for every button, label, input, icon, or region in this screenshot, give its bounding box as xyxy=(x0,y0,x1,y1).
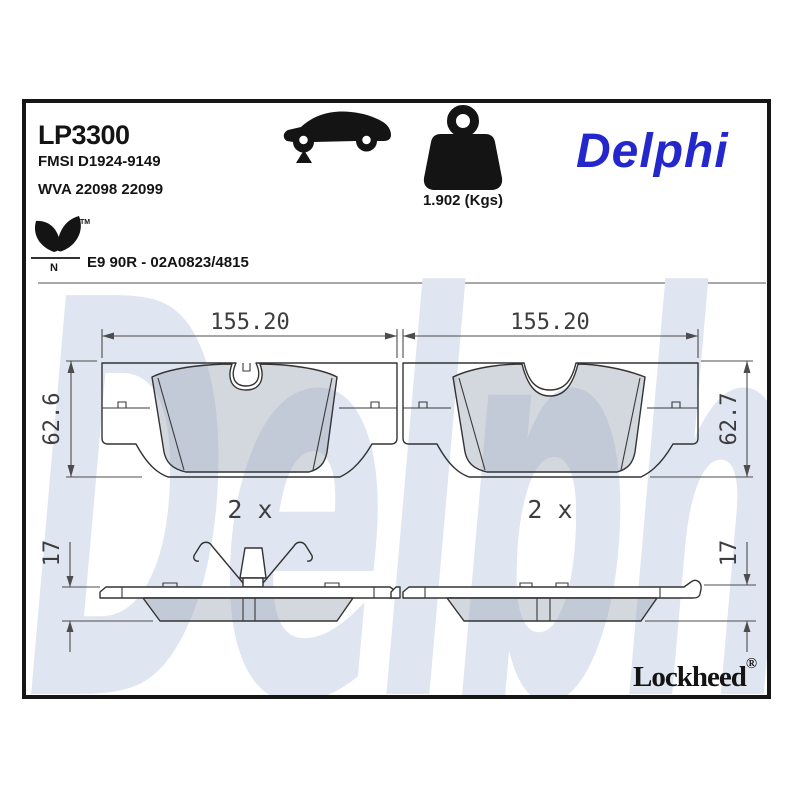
approval-number: E9 90R - 02A0823/4815 xyxy=(87,254,249,271)
registered-mark: ® xyxy=(746,656,757,672)
lockheed-logo: Lockheed® xyxy=(633,656,757,694)
header-divider xyxy=(38,282,766,284)
delphi-logo: Delphi xyxy=(576,124,729,179)
part-number: LP3300 xyxy=(38,120,130,151)
weight-value: 1.902 (Kgs) xyxy=(393,192,533,209)
datasheet-page: LP3300 FMSI D1924-9149 WVA 22098 22099 1… xyxy=(0,0,800,800)
fmsi-reference: FMSI D1924-9149 xyxy=(38,153,161,170)
wva-reference: WVA 22098 22099 xyxy=(38,181,163,198)
lockheed-text: Lockheed xyxy=(633,661,746,693)
